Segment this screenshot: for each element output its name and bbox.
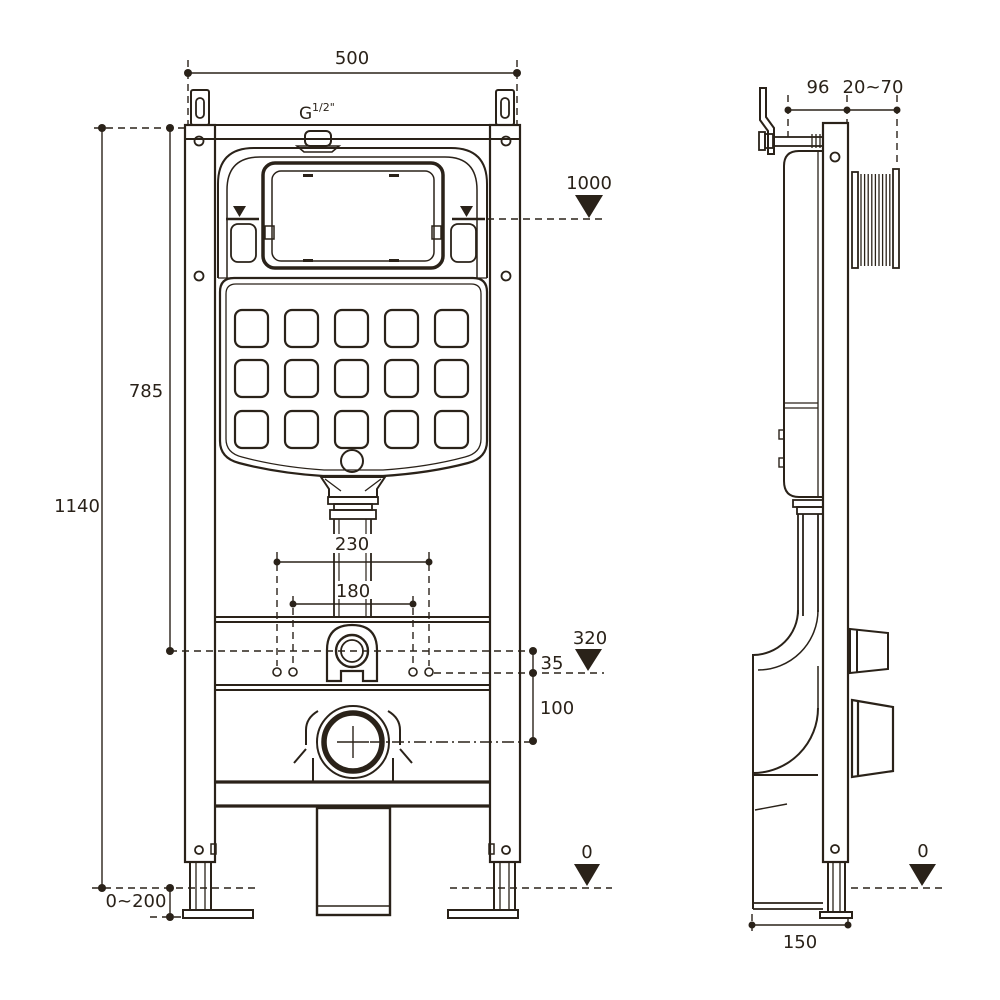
side-tank-profile [779, 151, 823, 497]
dim-span-inner-180: 180 [336, 581, 372, 602]
side-view [749, 88, 943, 931]
dim-base-depth-150: 150 [783, 932, 817, 953]
dim-overall-height-1140: 1140 [54, 496, 100, 517]
cistern-frame-drawing: 500 G 1/2" 1000 785 1140 230 180 320 35 … [0, 0, 1000, 1000]
cistern-tank-body [220, 278, 487, 476]
access-window [263, 163, 443, 268]
drain-box [317, 808, 390, 915]
dim-foot-range-0-200: 0~200 [106, 891, 167, 912]
dim-wall-gap-20-70: 20~70 [843, 77, 904, 98]
supply-fitting [327, 625, 377, 681]
technical-drawing-page: 500 G 1/2" 1000 785 1140 230 180 320 35 … [0, 0, 1000, 1000]
front-dimensions [92, 60, 612, 921]
dim-width-500: 500 [335, 48, 369, 69]
wall-spacer-corrugation [852, 169, 899, 268]
dim-span-inner-180-text: 180 [336, 581, 370, 602]
dim-span-outer-230-text: 230 [335, 534, 369, 555]
tank-grid [235, 310, 468, 448]
dim-fixing-height-320: 320 [573, 628, 607, 649]
drain-outlet [294, 706, 412, 782]
dim-tank-height-785: 785 [129, 381, 163, 402]
thread-label-g: G [299, 104, 312, 124]
wall-mount-tabs [191, 90, 514, 125]
dim-span-outer-230: 230 [333, 534, 373, 555]
cistern-dome [218, 148, 487, 278]
adjustable-feet [183, 862, 518, 918]
side-floor-datum-0: 0 [917, 841, 928, 862]
thread-label-size: 1/2" [312, 101, 335, 114]
dim-fixing-offset-35: 35 [541, 653, 564, 674]
dim-flush-level-1000: 1000 [566, 173, 612, 194]
front-view [92, 60, 612, 921]
side-frame-bar [820, 123, 852, 918]
dim-outlet-drop-100: 100 [540, 698, 574, 719]
dim-depth-96: 96 [807, 77, 830, 98]
front-floor-datum-0: 0 [581, 842, 592, 863]
